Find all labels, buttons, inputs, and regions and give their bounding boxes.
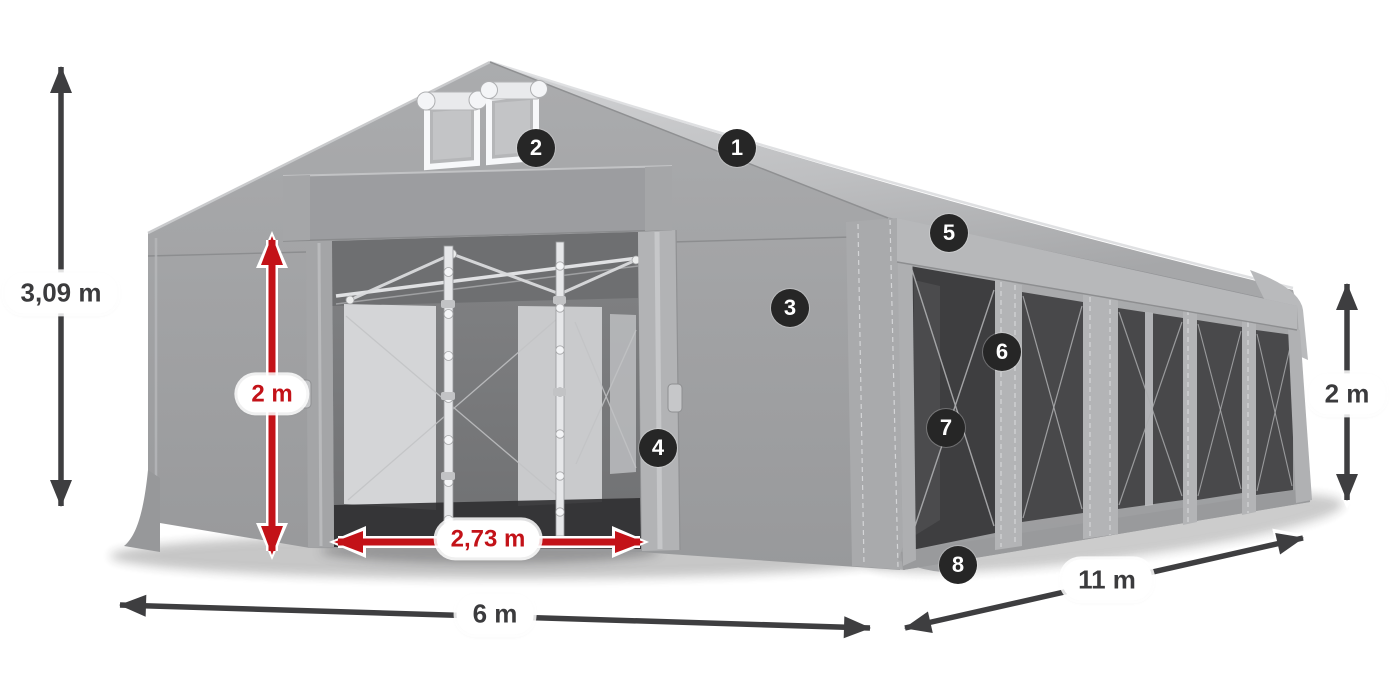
dimension-label-entrance-width: 2,73 m [437, 520, 540, 557]
dimension-label-side-length: 11 m [1062, 559, 1152, 600]
feature-badge-7: 7 [927, 409, 965, 447]
dimension-label-front-width: 6 m [457, 593, 534, 634]
entrance-strap-clip [668, 384, 682, 412]
dimension-label-total-height: 3,09 m [5, 272, 118, 313]
roof-vent-left [417, 91, 487, 167]
feature-badge-2: 2 [517, 129, 555, 167]
tent-illustration [0, 0, 1400, 700]
feature-badge-5: 5 [930, 214, 968, 252]
dimension-label-side-height: 2 m [1309, 373, 1386, 414]
entrance-header [283, 166, 672, 241]
dimension-label-entrance-height: 2 m [237, 375, 306, 412]
entrance-interior [332, 232, 641, 549]
front-left-skirt [124, 470, 160, 552]
interior-roof-underside [332, 232, 638, 306]
feature-badge-8: 8 [939, 546, 977, 584]
feature-badge-6: 6 [983, 333, 1021, 371]
interior-wall-panel [344, 304, 436, 510]
tent-diagram: 1 2 3 4 5 6 7 8 3,09 m 2 m 2,73 m 6 m 11… [0, 0, 1400, 700]
feature-badge-4: 4 [639, 429, 677, 467]
feature-badge-3: 3 [771, 289, 809, 327]
feature-badge-1: 1 [718, 129, 756, 167]
front-corner-pillar [846, 218, 905, 570]
